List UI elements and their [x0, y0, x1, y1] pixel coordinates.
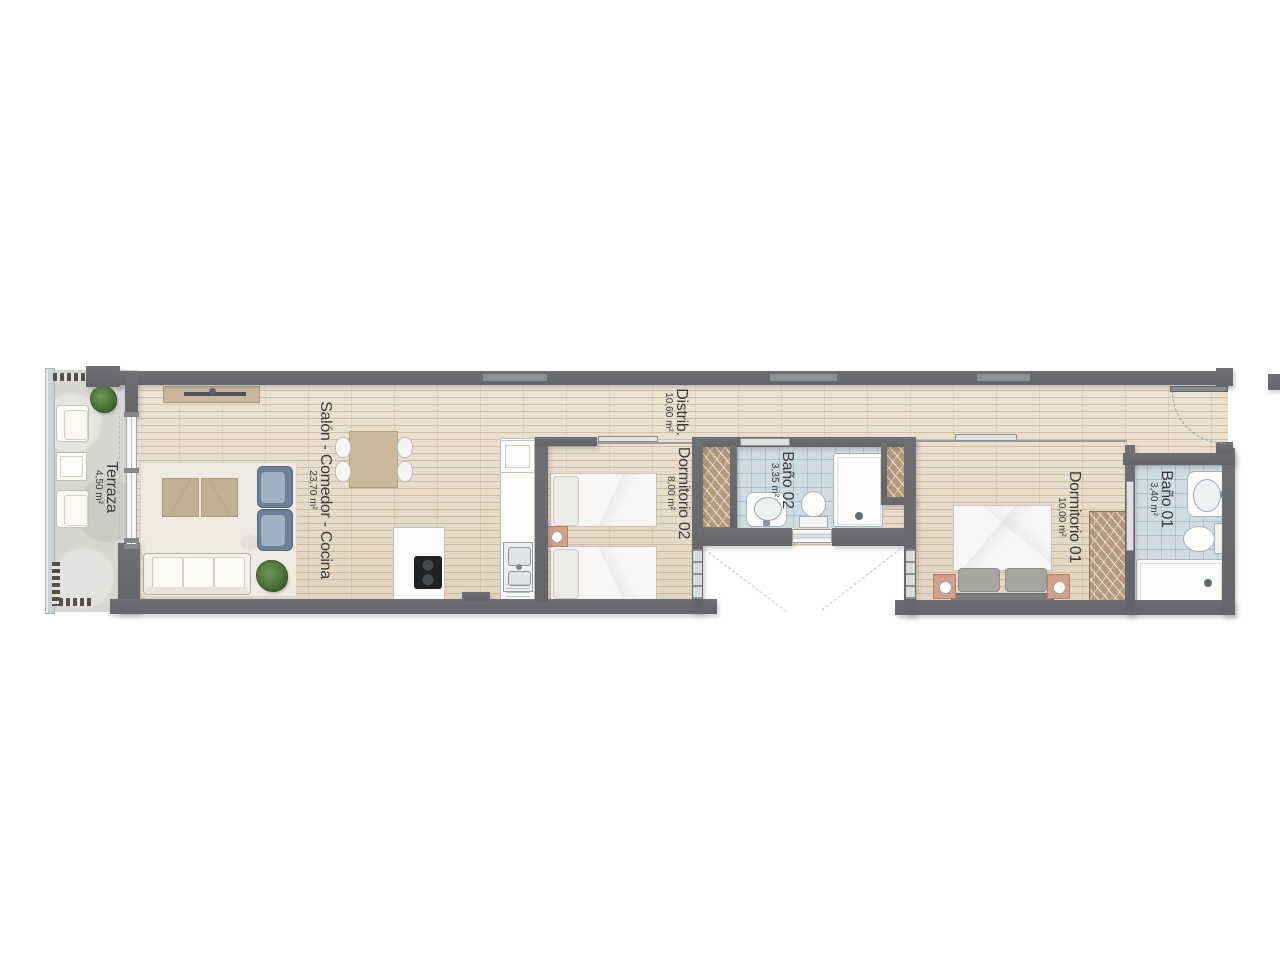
sofa-cushion: [214, 557, 245, 588]
wall-right: [1222, 448, 1235, 615]
terrace-armchair: [56, 405, 89, 442]
faucet-dot: [516, 564, 522, 570]
table-lamp: [939, 581, 952, 594]
nightstand: [933, 574, 956, 599]
armchair-cushion: [64, 410, 88, 440]
terrace-armchair: [56, 490, 89, 528]
shower-tray: [1136, 559, 1224, 606]
wall-segment: [697, 528, 792, 546]
wall-bath1-top: [1123, 453, 1235, 465]
lightwell-void: [703, 546, 905, 600]
room-name: Baño 02: [779, 451, 796, 509]
window-lightwell: [693, 549, 702, 599]
cooktop: [414, 556, 442, 589]
wall-bottom-left: [110, 599, 717, 614]
shower-drain: [1204, 579, 1212, 587]
terrace-table: [56, 452, 87, 481]
armchair-seat: [261, 472, 285, 503]
dining-chair: [397, 437, 413, 458]
bed-pillow: [958, 568, 1000, 592]
wall-bottom-right: [895, 600, 1235, 615]
wall-salon-divider: [535, 437, 548, 602]
room-label-bano1: Baño 01 3,40 m²: [1146, 461, 1176, 537]
double-bed: [953, 505, 1052, 606]
sofa-back: [146, 587, 248, 594]
room-area: 10,00 m²: [1055, 497, 1066, 536]
floor-cushion: [201, 478, 238, 517]
bed-pillow: [553, 549, 579, 599]
shower-tray: [833, 453, 883, 527]
closet-hall: [885, 444, 906, 499]
glazing-tab: [124, 412, 139, 417]
sofa: [143, 553, 251, 595]
railing-bottom: [59, 598, 92, 606]
floor-cushion: [162, 478, 199, 517]
room-label-distrib: Distrib. 10,60 m²: [661, 383, 691, 441]
wall-segment: [535, 437, 597, 446]
sliding-door-dorm2: [598, 436, 658, 442]
wall-segment: [832, 528, 912, 546]
window-band: [483, 374, 547, 381]
armchair-cushion: [64, 495, 88, 526]
terrace-plant: [90, 386, 117, 413]
salon-plant: [256, 560, 288, 592]
room-area: 3,35 m²: [768, 463, 779, 497]
room-area: 8,00 m²: [664, 476, 675, 510]
toilet-bowl: [801, 491, 826, 517]
room-name: Distrib.: [673, 388, 690, 435]
window-bath2: [792, 529, 832, 543]
table-lamp: [1053, 581, 1066, 594]
dining-table: [349, 431, 398, 488]
window-band: [770, 374, 837, 381]
toilet: [1183, 523, 1226, 554]
glazing-tab: [124, 468, 139, 473]
nightstand: [1047, 574, 1070, 599]
blue-armchair: [257, 509, 293, 551]
sink-basin: [1193, 479, 1221, 512]
dining-chair: [397, 461, 413, 482]
wall-segment: [125, 375, 138, 417]
toilet-bowl: [1183, 526, 1215, 552]
sink-drainer: [506, 584, 530, 600]
faucet: [763, 520, 770, 526]
room-label-salon: Salón - Comedor - Cocina 23,70 m²: [305, 400, 335, 580]
wall-segment: [1216, 368, 1233, 386]
wall-segment: [730, 445, 737, 528]
glazing-tab: [124, 538, 139, 543]
armchair-seat: [261, 515, 285, 546]
bed-pillow: [1005, 568, 1047, 592]
wall-pillar: [462, 592, 490, 601]
room-label-dormitorio2: Dormitorio 02 8,00 m²: [663, 437, 693, 549]
railing-top: [53, 373, 90, 381]
sliding-door-dorm1: [955, 434, 1017, 441]
dining-chair: [335, 437, 351, 458]
tv-mount-dot: [209, 388, 216, 395]
room-name: Terraza: [103, 461, 120, 512]
shower-drain: [855, 512, 863, 520]
room-label-bano2: Baño 02 3,35 m²: [767, 443, 797, 517]
room-label-terraza: Terraza 4,50 m²: [91, 447, 121, 527]
sofa-cushion: [152, 557, 183, 588]
dining-chair: [335, 461, 351, 482]
bed-duvet: [953, 505, 1052, 571]
single-bed: [550, 546, 657, 600]
sliding-track-dorm1: [916, 440, 1127, 442]
wall-segment: [86, 366, 120, 387]
wardrobe-dorm2: [699, 442, 732, 528]
window-band: [977, 374, 1030, 381]
lightwell-void-lower: [717, 599, 895, 620]
room-name: Dormitorio 01: [1066, 471, 1083, 563]
room-name: Baño 01: [1158, 470, 1175, 528]
room-name: Dormitorio 02: [675, 447, 692, 539]
wardrobe-dorm1: [1089, 511, 1127, 602]
room-name: Salón - Comedor - Cocina: [317, 401, 334, 579]
nightstand: [545, 526, 568, 547]
room-area: 3,40 m²: [1147, 482, 1158, 516]
window-lightwell: [906, 549, 915, 599]
room-area: 4,50 m²: [92, 470, 103, 504]
toilet: [799, 491, 828, 528]
sofa-cushion: [183, 557, 214, 588]
room-area: 10,60 m²: [662, 392, 673, 431]
blue-armchair: [257, 466, 293, 508]
floor-plan-canvas: Terraza 4,50 m² Salón - Comedor - Cocina…: [0, 0, 1280, 960]
table-lamp: [551, 531, 563, 543]
wall-segment: [881, 443, 887, 500]
bed-pillow: [553, 476, 579, 526]
fridge: [500, 440, 535, 473]
wall-segment: [1268, 374, 1280, 390]
door-bath1: [1126, 481, 1134, 551]
room-area: 23,70 m²: [306, 470, 317, 509]
glazing-tab: [124, 544, 139, 549]
toilet-tank: [799, 516, 828, 528]
single-bed: [550, 473, 657, 527]
room-label-dormitorio1: Dormitorio 01 10,00 m²: [1054, 461, 1084, 573]
terrace-glazing: [126, 415, 137, 545]
